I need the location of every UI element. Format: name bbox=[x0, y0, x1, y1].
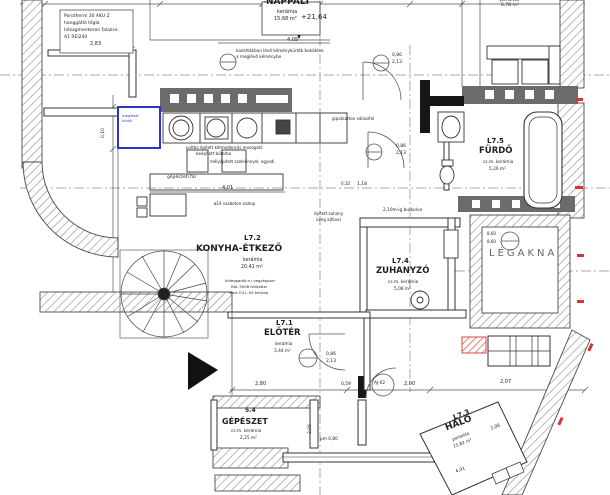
bathroom-sink bbox=[438, 112, 464, 142]
note-porotherm-4: A1 REI240 bbox=[64, 35, 87, 40]
note-kurto-2: kürtő bbox=[122, 119, 132, 123]
toilet bbox=[440, 160, 454, 184]
door-swings bbox=[309, 62, 404, 398]
note-kitchen-2: beépített bútorba bbox=[196, 152, 231, 157]
room-label-gepeszet: GÉPÉSZET bbox=[222, 417, 268, 426]
dim-konyha: 4,01 bbox=[222, 186, 233, 192]
room-id-konyha: L7.2 bbox=[244, 234, 261, 242]
note-burkolva: 2,10m-ig burkolva bbox=[383, 209, 422, 214]
door-tag: AJ-02 bbox=[374, 382, 385, 387]
dim-eloter-gap: 0,59 bbox=[341, 382, 351, 387]
room-area-furdo: 5,26 m² bbox=[489, 168, 506, 173]
note-gipszkarton: gipszkarton válaszfal bbox=[332, 117, 374, 122]
note-porotherm-2: hanggátló tégla bbox=[64, 21, 100, 26]
bathtub bbox=[524, 112, 562, 208]
room-label-legakna: LÉGAKNA bbox=[489, 248, 557, 260]
dim-eloter-w: 2,80 bbox=[255, 382, 266, 388]
note-chimney-2: a meglévő kéménybe bbox=[236, 55, 281, 60]
door-dim-w-2: 0,86 bbox=[396, 144, 406, 149]
room-label-furdo: FÜRDŐ bbox=[479, 147, 513, 157]
room-finish-nappali: kerámia bbox=[277, 10, 297, 16]
sofa bbox=[487, 46, 560, 84]
note-konyha-2: RAL 9006 felülettel bbox=[231, 285, 267, 289]
note-porotherm-1: Porotherm 30 AKU Z bbox=[64, 14, 110, 19]
dim-gepeszet-h: 2,05 bbox=[308, 424, 313, 434]
room-area-eloter: 3,44 m² bbox=[274, 350, 291, 355]
note-zuhany-1: épített zuhany bbox=[314, 212, 343, 217]
shower-drain bbox=[411, 291, 429, 309]
shower-sink-cabinet bbox=[444, 230, 458, 258]
note-kitchen-3: mélyépített szekrénnyel, egyedi bbox=[210, 160, 274, 165]
door-dim-w-3: 0,86 bbox=[326, 352, 336, 357]
dim-porotherm: 2,83 bbox=[90, 42, 101, 48]
door-dim-h-3: 2,13 bbox=[326, 359, 336, 364]
floorplan-canvas: NAPPALI kerámia 15,68 m² +21,64 parketta… bbox=[0, 0, 610, 495]
room-id-eloter: L7.1 bbox=[276, 319, 293, 327]
door-dim-h-1: 2,13 bbox=[392, 60, 402, 65]
room-label-eloter: ELŐTÉR bbox=[264, 329, 301, 339]
room-id-zuhanyzo: L7.4 bbox=[392, 257, 409, 265]
dim-kis-rot: 0,10 bbox=[101, 128, 106, 138]
door-dim-h-2: 2,13 bbox=[396, 151, 406, 156]
room-label-konyha: KONYHA-ÉTKEZŐ bbox=[196, 244, 282, 254]
room-area-erkely: 6,78 m² bbox=[501, 3, 519, 8]
room-finish-konyha: kerámia bbox=[243, 258, 262, 264]
note-pm: pm 0,80 bbox=[320, 438, 338, 443]
door-dim-w-1: 0,86 bbox=[392, 53, 402, 58]
note-konyha-3: lásd: E4 L-03 tervlap bbox=[229, 291, 268, 295]
note-zuhany-2: üveg ajtóval bbox=[316, 218, 341, 223]
room-finish-eloter: kerámia bbox=[275, 343, 292, 348]
room-label-nappali: NAPPALI bbox=[266, 0, 309, 7]
room-id-furdo: L7.5 bbox=[487, 137, 504, 145]
level-legakna-2: 8,60 bbox=[487, 240, 496, 245]
room-finish-zuhanyzo: cs.m. kerámia bbox=[388, 281, 418, 286]
dim-koz: 1,18 bbox=[357, 182, 367, 187]
level-legakna-1: 8,60 bbox=[487, 232, 496, 237]
room-finish-furdo: cs.m. kerámia bbox=[483, 161, 513, 166]
note-kitchen-1: pultba épített kétmedencés mosogató bbox=[186, 146, 263, 151]
room-area-nappali: 15,68 m² bbox=[274, 17, 297, 23]
room-area-gepeszet: 2,25 m² bbox=[240, 437, 257, 442]
dim-gepeszet-w: 2,00 bbox=[404, 382, 415, 388]
note-oszlop: ø14 vasbeton oszlop bbox=[214, 202, 255, 207]
room-finish-gepeszet: cs.m. kerámia bbox=[231, 430, 261, 435]
dim-nappali: 4,05 bbox=[287, 38, 298, 44]
note-porotherm-3: hézagmentesen falazva bbox=[64, 28, 118, 33]
room-area-konyha: 20,41 m² bbox=[241, 265, 263, 271]
dim-halo-w: 2,07 bbox=[500, 380, 511, 386]
level-mark: +21,64 bbox=[301, 13, 327, 21]
entrance-arrow-icon bbox=[188, 352, 218, 390]
note-gepfal: gépészeti fal bbox=[167, 175, 196, 180]
note-konyha-1: hidegpadló e-i vegyépszer bbox=[225, 279, 275, 283]
dim-kis2: 0,10 bbox=[341, 182, 350, 187]
room-label-zuhanyzo: ZUHANYZÓ bbox=[376, 267, 429, 277]
room-id-gepeszet: 5.4 bbox=[245, 408, 256, 415]
room-area-zuhanyzo: 5,08 m² bbox=[394, 288, 411, 293]
